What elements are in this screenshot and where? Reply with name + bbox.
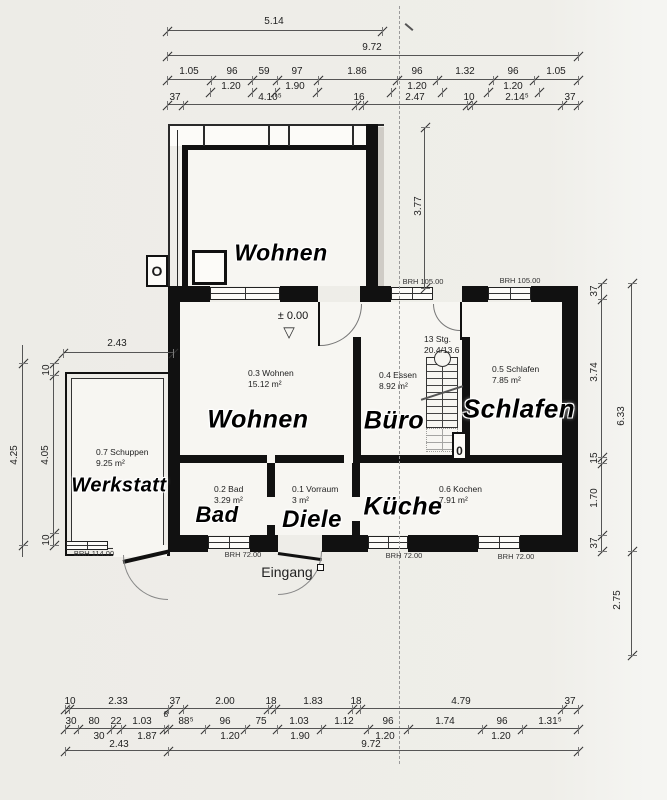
dim-text: 96 (219, 717, 230, 727)
dim-line (167, 104, 578, 105)
dim-line (65, 728, 578, 729)
downpipe-label: O (152, 263, 163, 279)
stairs-count: 13 Stg. (424, 334, 459, 345)
room-label-wohnen: Wohnen (207, 406, 308, 435)
dim-text: 6.33 (617, 406, 627, 425)
wall (168, 124, 170, 288)
brh-label: BRH 72.00 (225, 550, 262, 559)
wall (267, 463, 275, 497)
dim-text: 1.20 (221, 82, 240, 92)
dim-tick (241, 724, 251, 734)
door-leaf (460, 302, 462, 340)
dim-line (53, 363, 54, 547)
stairs-annotation: 13 Stg. 20.4/13.6 (424, 334, 459, 356)
dim-text: 1.20 (220, 732, 239, 742)
window-symbol (368, 536, 408, 549)
dim-text: 1.86 (347, 67, 366, 77)
brh-label: BRH 72.00 (386, 551, 423, 560)
dim-line (424, 127, 425, 288)
dim-text: 18 (265, 697, 276, 707)
dim-text: 10 (463, 93, 474, 103)
dim-text: 4.79 (451, 697, 470, 707)
dim-text: 2.43 (109, 740, 128, 750)
dim-text: 2.00 (215, 697, 234, 707)
window-symbol (210, 287, 280, 300)
dim-tick (393, 75, 403, 85)
window-mullion (352, 126, 354, 146)
dim-tick (478, 724, 488, 734)
dim-text: 22 (110, 717, 121, 727)
dim-text: 4.25 (10, 445, 20, 464)
room-id: 0.1 Vorraum (292, 484, 338, 495)
room-label-kueche: Küche (364, 493, 443, 522)
dim-tick (420, 122, 430, 132)
dim-text: 96 (411, 67, 422, 77)
dim-text: 2.75 (613, 590, 623, 609)
wall (520, 535, 578, 552)
dim-text: 37 (169, 697, 180, 707)
dim-text: 9.72 (361, 740, 380, 750)
room-area: 7.91 m² (439, 495, 482, 506)
room-annotation: 0.5 Schlafen 7.85 m² (492, 364, 539, 386)
dim-text: 3.74 (590, 362, 600, 381)
dim-text: 97 (291, 67, 302, 77)
dim-tick (313, 87, 323, 97)
dim-tick (61, 746, 71, 756)
dim-line (65, 708, 578, 709)
dim-text: 96 (507, 67, 518, 77)
dim-text: 30 (65, 717, 76, 727)
dim-text: 1.05 (179, 67, 198, 77)
dim-text: 1.20 (491, 732, 510, 742)
wall (408, 535, 478, 552)
room-id: 0.7 Schuppen (96, 447, 148, 458)
dim-text: 1.12 (334, 717, 353, 727)
wall (322, 535, 368, 552)
dim-text: 9.72 (362, 43, 381, 53)
dim-text: 15 (590, 452, 600, 463)
room-area: 9.25 m² (96, 458, 148, 469)
dim-tick (163, 75, 173, 85)
wall (352, 521, 360, 535)
room-label-schlafen: Schlafen (463, 394, 575, 425)
dim-text: 8 (164, 710, 168, 720)
dim-tick (59, 348, 69, 358)
dim-text: 1.03 (289, 717, 308, 727)
window-symbol (478, 536, 520, 549)
dim-text: 88⁵ (178, 717, 193, 727)
dim-tick (164, 746, 174, 756)
dim-tick (574, 75, 584, 85)
dim-tick (364, 724, 374, 734)
dim-text: 80 (88, 717, 99, 727)
wall (267, 525, 275, 535)
dim-text: 1.87 (137, 732, 156, 742)
wall (182, 150, 188, 288)
dim-line (65, 750, 578, 751)
dim-tick (387, 87, 397, 97)
dim-text: 5.14 (264, 17, 283, 27)
dim-text: 10 (42, 534, 52, 545)
dim-text: 1.83 (303, 697, 322, 707)
dim-text: 59 (258, 67, 269, 77)
room-label-buero: Büro (364, 407, 424, 436)
dim-tick (627, 546, 637, 556)
dim-text: 1.90 (290, 732, 309, 742)
dim-tick (484, 87, 494, 97)
room-annotation: 0.7 Schuppen 9.25 m² (96, 447, 148, 469)
dim-text: 96 (496, 717, 507, 727)
dim-tick (273, 724, 283, 734)
dim-tick (489, 75, 499, 85)
dim-tick (273, 75, 283, 85)
dim-text: 1.31⁵ (538, 717, 562, 727)
dim-tick (163, 26, 173, 36)
dim-text: 1.70 (590, 488, 600, 507)
dim-tick (438, 87, 448, 97)
room-id: 0.5 Schlafen (492, 364, 539, 375)
window-mullion (288, 126, 290, 146)
room-id: 0.3 Wohnen (248, 368, 294, 379)
dim-tick (530, 75, 540, 85)
dim-tick (18, 358, 28, 368)
brh-label: BRH 114.00 (74, 549, 114, 558)
brh-label: BRH 105.00 (500, 276, 541, 285)
dim-tick (627, 650, 637, 660)
dim-text: 16 (353, 93, 364, 103)
dim-text: 4.05 (41, 445, 51, 464)
window-mullion (268, 126, 270, 146)
wall (177, 130, 178, 288)
dim-text: 1.03 (132, 717, 151, 727)
wall (353, 337, 361, 455)
dim-text: 37 (590, 285, 600, 296)
downpipe-symbol: O (146, 255, 168, 287)
wall (168, 455, 267, 463)
wall-shading (378, 127, 384, 287)
dim-tick (404, 724, 414, 734)
room-area: 7.85 m² (492, 375, 539, 386)
dim-text: 3.77 (414, 196, 424, 215)
dim-tick (206, 87, 216, 97)
wall (182, 145, 368, 150)
dim-text: 18 (350, 697, 361, 707)
wall (360, 286, 391, 302)
dim-text: 1.74 (435, 717, 454, 727)
room-label-diele: Diele (282, 506, 342, 534)
dim-tick (433, 75, 443, 85)
downpipe-label: 0 (456, 444, 463, 458)
room-annotation: 0.3 Wohnen 15.12 m² (248, 368, 294, 390)
room-id: 0.4 Essen (379, 370, 417, 381)
dim-tick (248, 87, 258, 97)
section-arrow (405, 23, 414, 31)
dim-tick (518, 724, 528, 734)
wall (168, 535, 208, 552)
brh-label: BRH 72.00 (498, 552, 535, 561)
downpipe-symbol: 0 (452, 432, 467, 460)
room-annotation: 0.4 Essen 8.92 m² (379, 370, 417, 392)
room-id: 0.6 Kochen (439, 484, 482, 495)
door-swing-arc (123, 555, 168, 600)
dim-text: 30 (93, 732, 104, 742)
dim-text: 2.33 (108, 697, 127, 707)
dim-line (631, 283, 632, 655)
wall (366, 124, 378, 288)
stairs-ratio: 20.4/13.6 (424, 345, 459, 356)
dim-text: 2.47 (405, 93, 424, 103)
wall (275, 455, 344, 463)
wall (352, 463, 360, 497)
door-stop-symbol (317, 564, 324, 571)
dim-tick (207, 75, 217, 85)
dim-text: 96 (226, 67, 237, 77)
dim-tick (314, 75, 324, 85)
dim-tick (378, 26, 388, 36)
chimney-block (192, 250, 227, 285)
dim-text: 96 (382, 717, 393, 727)
room-area: 15.12 m² (248, 379, 294, 390)
room-annotation: 0.1 Vorraum 3 m² (292, 484, 338, 506)
dim-text: 4.10⁵ (258, 93, 282, 103)
wall (280, 286, 318, 302)
level-triangle-icon: ▽ (283, 326, 295, 340)
dim-tick (574, 746, 584, 756)
dim-tick (163, 51, 173, 61)
dim-tick (535, 87, 545, 97)
level-marker: ± 0.00 (278, 310, 309, 322)
dim-tick (627, 278, 637, 288)
room-area: 8.92 m² (379, 381, 417, 392)
room-label-wohnen-oben: Wohnen (234, 240, 327, 267)
dim-text: 37 (564, 93, 575, 103)
dim-line (167, 55, 578, 56)
dim-text: 1.05 (546, 67, 565, 77)
room-area: 3 m² (292, 495, 338, 506)
dim-text: 10 (42, 364, 52, 375)
dim-tick (574, 51, 584, 61)
dim-line (22, 345, 23, 557)
floor-plan: O 0 ± 0.00 (0, 0, 667, 800)
room-area: 3.29 m² (214, 495, 243, 506)
room-label-werkstatt: Werkstatt (71, 475, 166, 498)
dim-text: 37 (169, 93, 180, 103)
dim-tick (201, 724, 211, 734)
dim-text: 37 (564, 697, 575, 707)
dim-text: 1.32 (455, 67, 474, 77)
room-id: 0.2 Bad (214, 484, 243, 495)
brh-label: BRH 105.00 (403, 277, 444, 286)
wall (462, 286, 488, 302)
entrance-label: Eingang (261, 564, 312, 580)
dim-line (601, 283, 602, 551)
dim-text: 75 (255, 717, 266, 727)
dim-line (167, 30, 382, 31)
dim-line (63, 352, 173, 353)
dim-line (167, 79, 578, 80)
room-annotation: 0.2 Bad 3.29 m² (214, 484, 243, 506)
dim-tick (317, 724, 327, 734)
dim-text: 1.20 (503, 82, 522, 92)
window-mullion (203, 126, 205, 146)
dim-text: 10 (64, 697, 75, 707)
room-annotation: 0.6 Kochen 7.91 m² (439, 484, 482, 506)
window-symbol (488, 287, 531, 300)
dim-text: 2.43 (107, 339, 126, 349)
window-symbol (208, 536, 250, 549)
dim-tick (248, 75, 258, 85)
dim-text: 37 (590, 537, 600, 548)
dim-tick (18, 540, 28, 550)
dim-tick (574, 724, 584, 734)
dim-text: 2.14⁵ (505, 93, 529, 103)
dim-text: 1.90 (285, 82, 304, 92)
dim-text: 1.20 (407, 82, 426, 92)
